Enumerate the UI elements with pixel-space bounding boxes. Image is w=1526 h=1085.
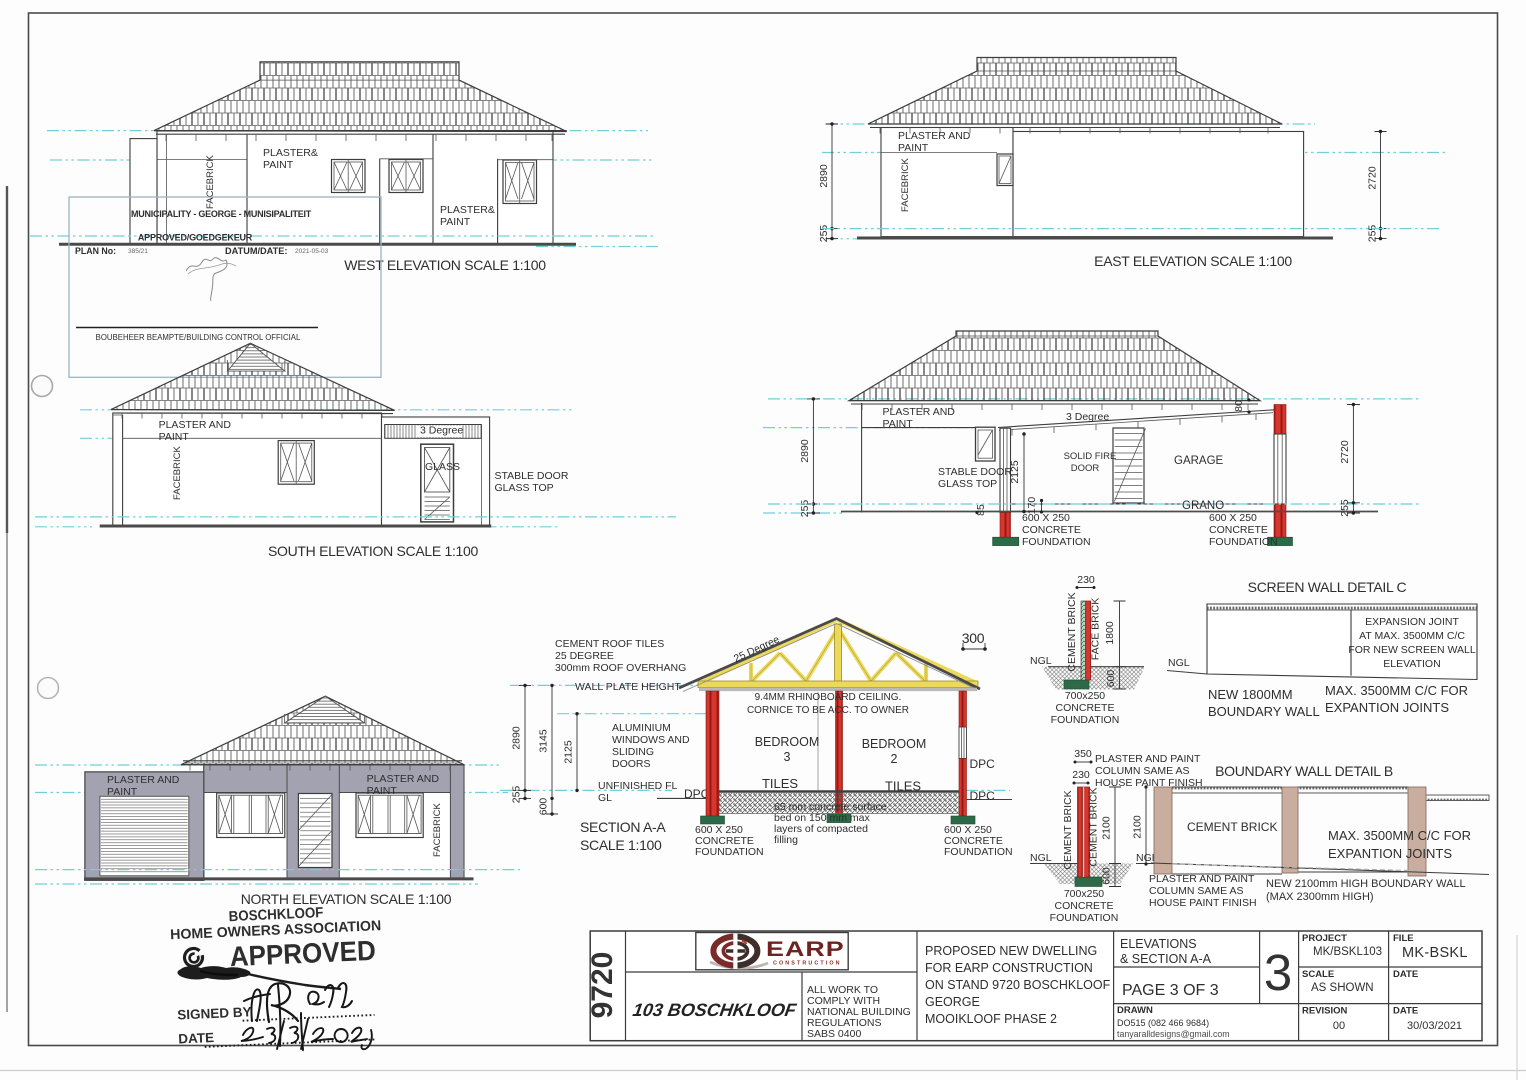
svg-text:2125: 2125 [563,740,575,764]
svg-text:FACEBRICK: FACEBRICK [205,154,216,209]
svg-text:TILES: TILES [885,779,921,794]
svg-text:300: 300 [962,630,985,646]
svg-text:2720: 2720 [1367,166,1379,190]
svg-text:FILE: FILE [1393,933,1414,944]
svg-text:MAX. 3500MM C/C FOR: MAX. 3500MM C/C FOR [1328,828,1471,843]
svg-text:80: 80 [1233,400,1245,412]
svg-text:NORTH ELEVATION SCALE 1:100: NORTH ELEVATION SCALE 1:100 [241,891,452,907]
svg-text:CEMENT ROOF TILES: CEMENT ROOF TILES [555,638,664,650]
svg-text:PROJECT: PROJECT [1302,933,1347,944]
svg-text:FOUNDATION: FOUNDATION [944,846,1013,858]
svg-text:PLASTER&: PLASTER& [263,147,318,159]
svg-text:PAINT: PAINT [898,142,929,154]
svg-text:2021-05-03: 2021-05-03 [295,248,329,255]
svg-text:00: 00 [1333,1020,1345,1032]
svg-text:WALL PLATE HEIGHT: WALL PLATE HEIGHT [575,681,681,693]
svg-text:GL: GL [598,792,612,804]
svg-text:DOORS: DOORS [612,758,651,770]
svg-text:FOUNDATION: FOUNDATION [695,846,764,858]
svg-text:PROPOSED NEW DWELLING: PROPOSED NEW DWELLING [925,944,1097,958]
svg-text:300mm ROOF OVERHANG: 300mm ROOF OVERHANG [555,662,686,674]
svg-text:GEORGE: GEORGE [925,995,980,1009]
svg-text:600 X 250: 600 X 250 [1022,512,1070,524]
svg-text:350: 350 [1074,748,1092,760]
svg-text:SOUTH ELEVATION SCALE 1:100: SOUTH ELEVATION SCALE 1:100 [268,543,479,559]
svg-text:600 X 250: 600 X 250 [1209,512,1257,524]
svg-text:CONCRETE: CONCRETE [1055,900,1114,912]
svg-text:PLASTER AND: PLASTER AND [883,406,956,418]
svg-text:2890: 2890 [511,726,523,750]
svg-text:APPROVED/GOEDGEKEUR: APPROVED/GOEDGEKEUR [138,233,253,243]
svg-text:FOUNDATION: FOUNDATION [1022,536,1091,548]
svg-text:2890: 2890 [799,439,811,463]
svg-text:3: 3 [1264,944,1292,1001]
svg-text:SOLID FIRE: SOLID FIRE [1064,451,1117,462]
svg-text:3: 3 [784,750,791,764]
svg-text:SABS 0400: SABS 0400 [807,1028,861,1040]
svg-text:BOUBEHEER BEAMPTE/BUILDING CON: BOUBEHEER BEAMPTE/BUILDING CONTROL OFFIC… [96,333,301,342]
svg-text:PAINT: PAINT [883,418,914,430]
svg-text:700x250: 700x250 [1064,888,1104,900]
svg-text:FACEBRICK: FACEBRICK [172,445,183,500]
svg-text:NEW 2100mm HIGH BOUNDARY WALL: NEW 2100mm HIGH BOUNDARY WALL [1266,878,1466,890]
svg-text:FACEBRICK: FACEBRICK [432,802,443,857]
svg-text:APPROVED: APPROVED [229,935,376,972]
svg-text:DO515 (082 466 9684): DO515 (082 466 9684) [1117,1018,1209,1028]
svg-text:FOUNDATION: FOUNDATION [1209,536,1278,548]
svg-text:600: 600 [538,798,550,816]
svg-text:MAX. 3500MM C/C FOR: MAX. 3500MM C/C FOR [1325,683,1468,698]
svg-text:SECTION A-A: SECTION A-A [580,819,666,835]
svg-text:FOUNDATION: FOUNDATION [1051,714,1120,726]
svg-text:BEDROOM: BEDROOM [862,737,927,751]
svg-text:(MAX 2300mm HIGH): (MAX 2300mm HIGH) [1266,891,1374,903]
svg-text:FACEBRICK: FACEBRICK [900,157,911,212]
svg-text:MK/BSKL103: MK/BSKL103 [1313,946,1382,958]
svg-text:MOOIKLOOF PHASE 2: MOOIKLOOF PHASE 2 [925,1012,1057,1026]
svg-text:MUNICIPALITY - GEORGE - MUNISI: MUNICIPALITY - GEORGE - MUNISIPALITEIT [131,209,312,219]
svg-text:600: 600 [1101,867,1113,885]
svg-text:CEMENT BRICK: CEMENT BRICK [1066,592,1078,671]
svg-text:CEMENT BRICK: CEMENT BRICK [1062,790,1074,869]
svg-text:DOOR: DOOR [1071,463,1100,474]
svg-text:CONCRETE: CONCRETE [1056,702,1115,714]
svg-text:SCALE: SCALE [1302,969,1334,980]
svg-text:DATE: DATE [178,1030,214,1047]
svg-text:3145: 3145 [538,729,550,753]
svg-text:2: 2 [891,752,898,766]
svg-text:PLASTER AND: PLASTER AND [898,130,971,142]
svg-text:STABLE DOOR: STABLE DOOR [938,466,1012,478]
svg-text:NGL: NGL [1168,657,1190,669]
svg-text:600: 600 [1105,670,1117,688]
svg-text:GARAGE: GARAGE [1174,455,1224,467]
svg-text:GLASS TOP: GLASS TOP [938,478,997,490]
svg-text:GLASS: GLASS [425,461,460,473]
svg-text:DATE: DATE [1393,1006,1418,1017]
svg-text:ALUMINIUM: ALUMINIUM [612,722,671,734]
svg-text:FACE BRICK: FACE BRICK [1090,598,1102,660]
svg-text:DPC: DPC [970,757,996,771]
svg-text:9.4MM RHINOBOARD CEILING.: 9.4MM RHINOBOARD CEILING. [755,692,902,703]
svg-text:HOUSE PAINT FINISH: HOUSE PAINT FINISH [1149,897,1257,909]
svg-text:PLASTER AND: PLASTER AND [367,773,440,785]
svg-text:CORNICE TO BE ACC. TO OWNER: CORNICE TO BE ACC. TO OWNER [747,705,909,716]
svg-text:DPC: DPC [970,789,996,803]
svg-text:700x250: 700x250 [1065,690,1105,702]
svg-text:EXPANTION JOINTS: EXPANTION JOINTS [1328,846,1452,861]
svg-text:AT MAX. 3500MM C/C: AT MAX. 3500MM C/C [1359,630,1465,642]
svg-text:255: 255 [1339,499,1351,517]
svg-text:NEW 1800MM: NEW 1800MM [1208,687,1293,702]
svg-text:TILES: TILES [762,776,798,791]
svg-text:1800: 1800 [1104,621,1116,645]
svg-text:NGL: NGL [1030,852,1052,864]
svg-text:WINDOWS AND: WINDOWS AND [612,734,690,746]
svg-text:COLUMN SAME AS: COLUMN SAME AS [1149,885,1244,897]
svg-text:PLAN No:: PLAN No: [75,246,116,256]
svg-text:103 BOSCHKLOOF: 103 BOSCHKLOOF [631,1000,798,1020]
svg-text:BOUNDARY WALL: BOUNDARY WALL [1208,704,1320,719]
svg-text:ON STAND 9720 BOSCHKLOOF: ON STAND 9720 BOSCHKLOOF [925,978,1111,992]
svg-text:PAGE 3 OF 3: PAGE 3 OF 3 [1122,982,1219,999]
svg-text:CONCRETE: CONCRETE [1209,524,1268,536]
svg-text:SCALE 1:100: SCALE 1:100 [580,837,662,853]
svg-text:FOR EARP CONSTRUCTION: FOR EARP CONSTRUCTION [925,961,1093,975]
svg-text:PLASTER AND PAINT: PLASTER AND PAINT [1095,753,1201,765]
svg-text:GLASS TOP: GLASS TOP [495,482,554,494]
svg-text:BOUNDARY WALL DETAIL B: BOUNDARY WALL DETAIL B [1215,763,1393,779]
svg-text:DATE: DATE [1393,969,1418,980]
svg-text:255: 255 [511,786,523,804]
svg-text:85: 85 [975,504,987,516]
svg-text:230: 230 [1072,769,1090,781]
svg-text:EAST ELEVATION SCALE 1:100: EAST ELEVATION SCALE 1:100 [1094,253,1292,269]
svg-text:CONCRETE: CONCRETE [1022,524,1081,536]
svg-text:2720: 2720 [1339,440,1351,464]
svg-text:& SECTION A-A: & SECTION A-A [1120,952,1212,966]
svg-text:STABLE DOOR: STABLE DOOR [495,470,569,482]
svg-text:SLIDING: SLIDING [612,746,654,758]
svg-text:255: 255 [818,225,830,243]
svg-text:SCREEN WALL DETAIL C: SCREEN WALL DETAIL C [1248,579,1407,595]
svg-text:PAINT: PAINT [263,159,294,171]
svg-text:PLASTER AND: PLASTER AND [159,419,232,431]
svg-text:2100: 2100 [1101,816,1113,840]
svg-text:9720: 9720 [586,952,619,1019]
svg-text:UNFINISHED FL: UNFINISHED FL [598,780,678,792]
svg-text:2890: 2890 [818,164,830,188]
svg-text:PLASTER&: PLASTER& [440,204,495,216]
svg-text:PLASTER AND: PLASTER AND [107,774,180,786]
svg-text:filling: filling [774,834,798,846]
svg-text:255: 255 [1367,225,1379,243]
svg-text:3 Degree: 3 Degree [420,425,463,437]
svg-text:PAINT: PAINT [440,216,471,228]
svg-text:385/21: 385/21 [128,248,148,255]
svg-text:CEMENT BRICK: CEMENT BRICK [1187,820,1277,834]
svg-text:FOUNDATION: FOUNDATION [1050,912,1119,924]
svg-text:230: 230 [1077,574,1095,586]
svg-text:COLUMN SAME AS: COLUMN SAME AS [1095,765,1190,777]
svg-text:PAINT: PAINT [159,431,190,443]
svg-text:MK-BSKL: MK-BSKL [1402,945,1468,961]
svg-text:AS SHOWN: AS SHOWN [1311,982,1374,994]
svg-text:3 Degree: 3 Degree [1066,411,1109,423]
svg-text:DRAWN: DRAWN [1117,1005,1153,1016]
svg-text:2100: 2100 [1132,815,1144,839]
svg-text:PLASTER AND PAINT: PLASTER AND PAINT [1149,873,1255,885]
svg-text:NGL: NGL [1030,655,1052,667]
svg-text:FOR NEW SCREEN WALL: FOR NEW SCREEN WALL [1348,644,1476,656]
svg-text:ELEVATIONS: ELEVATIONS [1120,937,1197,951]
svg-text:25 DEGREE: 25 DEGREE [555,650,614,662]
svg-text:CEMENT BRICK: CEMENT BRICK [1088,787,1100,866]
svg-text:DATUM/DATE:: DATUM/DATE: [225,246,287,256]
svg-text:WEST ELEVATION SCALE 1:100: WEST ELEVATION SCALE 1:100 [344,257,546,273]
svg-text:GRANO: GRANO [1182,500,1224,512]
svg-text:REVISION: REVISION [1302,1006,1348,1017]
svg-text:30/03/2021: 30/03/2021 [1407,1020,1462,1032]
svg-text:tanyaralldesigns@gmail.com: tanyaralldesigns@gmail.com [1117,1029,1230,1039]
svg-text:EXPANSION JOINT: EXPANSION JOINT [1365,616,1459,628]
svg-text:BEDROOM: BEDROOM [755,735,820,749]
svg-text:PAINT: PAINT [367,785,398,797]
svg-text:CONSTRUCTION: CONSTRUCTION [773,961,842,967]
svg-text:EXPANTION JOINTS: EXPANTION JOINTS [1325,700,1449,715]
svg-text:255: 255 [799,500,811,518]
svg-text:EARP: EARP [766,938,845,962]
svg-text:ELEVATION: ELEVATION [1383,658,1440,670]
